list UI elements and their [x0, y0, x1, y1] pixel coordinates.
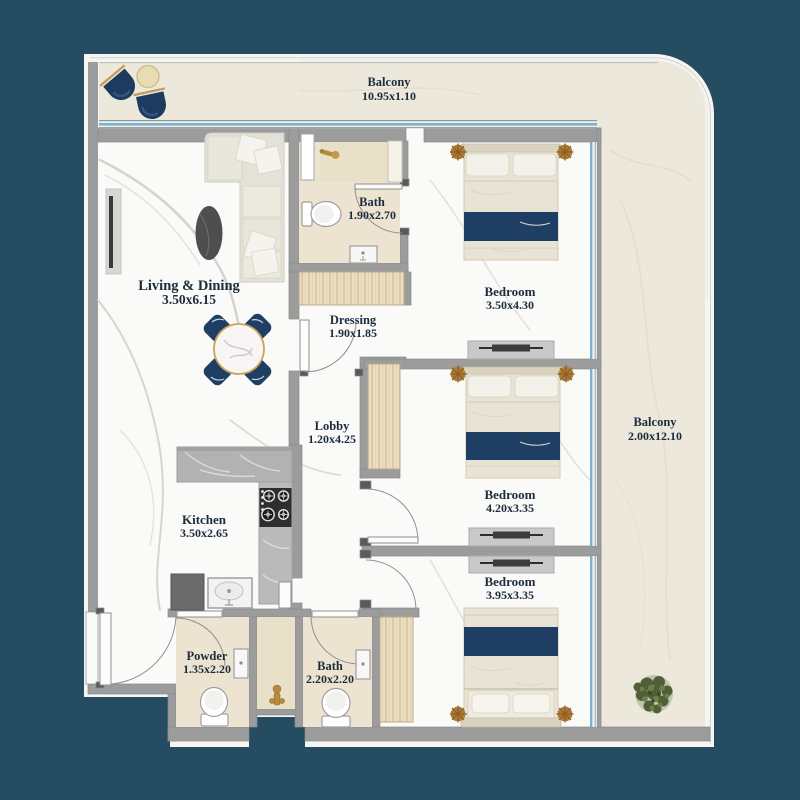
svg-text:Dressing: Dressing — [330, 313, 377, 327]
svg-text:3.50x4.30: 3.50x4.30 — [486, 298, 534, 312]
svg-text:Bedroom: Bedroom — [484, 284, 535, 299]
svg-text:Bedroom: Bedroom — [484, 574, 535, 589]
svg-text:3.50x6.15: 3.50x6.15 — [162, 292, 216, 307]
svg-text:4.20x3.35: 4.20x3.35 — [486, 501, 534, 515]
svg-text:2.00x12.10: 2.00x12.10 — [628, 429, 682, 443]
svg-text:Kitchen: Kitchen — [182, 512, 227, 527]
svg-text:1.90x2.70: 1.90x2.70 — [348, 208, 396, 222]
svg-text:1.35x2.20: 1.35x2.20 — [183, 662, 231, 676]
svg-text:Balcony: Balcony — [367, 75, 411, 89]
svg-text:Bath: Bath — [317, 659, 343, 673]
svg-text:3.95x3.35: 3.95x3.35 — [486, 588, 534, 602]
svg-text:Balcony: Balcony — [633, 415, 677, 429]
svg-text:Bath: Bath — [359, 195, 385, 209]
svg-text:10.95x1.10: 10.95x1.10 — [362, 89, 416, 103]
svg-text:Lobby: Lobby — [315, 419, 350, 433]
svg-text:1.90x1.85: 1.90x1.85 — [329, 326, 377, 340]
svg-text:Bedroom: Bedroom — [484, 487, 535, 502]
svg-text:3.50x2.65: 3.50x2.65 — [180, 526, 228, 540]
svg-text:1.20x4.25: 1.20x4.25 — [308, 432, 356, 446]
svg-text:Powder: Powder — [187, 649, 228, 663]
svg-text:2.20x2.20: 2.20x2.20 — [306, 672, 354, 686]
